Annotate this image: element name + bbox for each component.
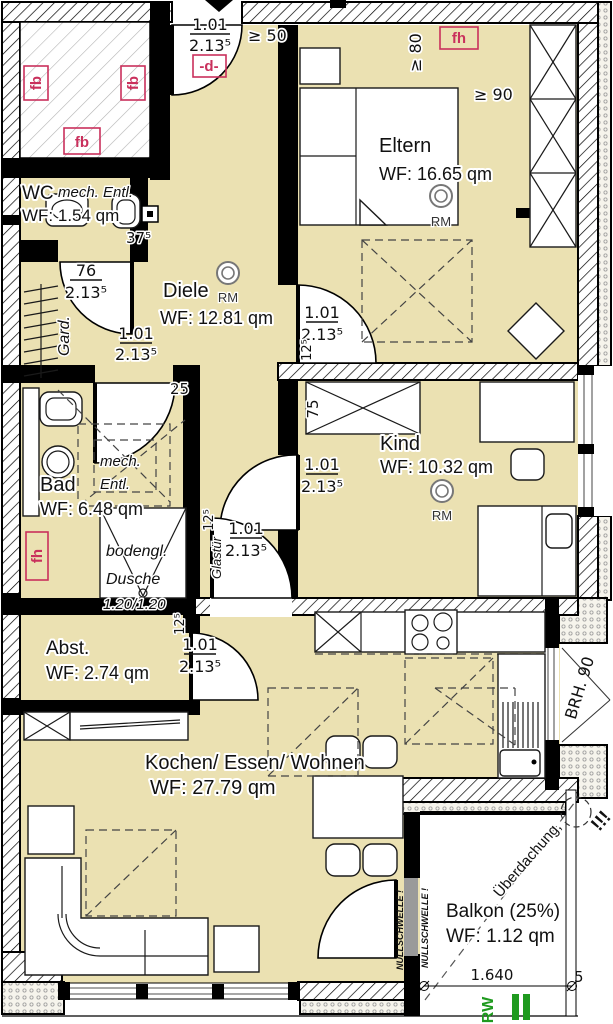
fh-marker-eltern: fh [452, 30, 466, 47]
room-area-abst: WF: 2.74 qm [46, 663, 149, 683]
fb-marker-3: fb [75, 134, 89, 151]
dim-wc-wall: 37⁵ [126, 229, 151, 247]
rw-label: RW [480, 996, 497, 1023]
dim-wardrobe: 75 [304, 399, 322, 418]
room-label-diele: Diele [163, 280, 209, 302]
rm-label-diele: RM [218, 290, 238, 305]
room-area-balkon: WF: 1.12 qm [446, 926, 555, 947]
door-glas-label: Glastür [209, 536, 224, 579]
fh-marker-bad: fh [29, 549, 46, 563]
door-bad-width: 1.01 [118, 324, 154, 343]
ueberdachung-label: Überdachung, [490, 818, 565, 901]
room-area-bad: WF: 6.48 qm [40, 499, 143, 519]
door-entry-width: 1.01 [192, 15, 228, 34]
shower-bodengl: bodengl. [106, 543, 167, 560]
door-wc-width: 76 [76, 261, 96, 280]
wc-vent-label: mech. Entl. [58, 184, 133, 201]
door-abst-height: 2.13⁵ [179, 657, 221, 676]
door-glas-width: 1.01 [228, 519, 264, 538]
door-kind-width: 1.01 [304, 455, 340, 474]
door-entry-min: ≥ 50 [248, 26, 287, 45]
floorplan-page: fb fb fb [0, 0, 613, 1024]
room-area-kind: WF: 10.32 qm [380, 457, 493, 477]
door-abst-stub: 12⁵ [173, 613, 188, 635]
fb-marker-1: fb [28, 76, 45, 90]
room-label-balkon: Balkon (25%) [446, 901, 560, 922]
floorplan-drawing: fb fb fb [0, 0, 613, 1024]
room-label-wohnen: Kochen/ Essen/ Wohnen [145, 752, 365, 774]
room-area-wohnen: WF: 27.79 qm [150, 777, 276, 799]
rm-label-kind: RM [432, 508, 452, 523]
room-label-eltern: Eltern [379, 135, 431, 157]
room-label-bad: Bad [40, 474, 76, 496]
rm-label-eltern: RM [431, 214, 451, 229]
door-bad-height: 2.13⁵ [115, 345, 157, 364]
room-area-diele: WF: 12.81 qm [160, 308, 273, 328]
dim-min90: ≥ 90 [474, 85, 513, 104]
shower-size: 1.20/1.20 [103, 596, 166, 613]
bad-vent-mech: mech. [100, 453, 141, 470]
nullschwelle-right: NULLSCHWELLE ! [420, 888, 430, 968]
dim-balkon-width: 1.640 [471, 966, 514, 984]
shower-dusche: Dusche [106, 571, 160, 588]
dim-balkon-extra: 5 [574, 968, 584, 986]
door-wc-height: 2.13⁵ [65, 283, 107, 302]
gard-label: Gard. [56, 316, 73, 356]
room-area-eltern: WF: 16.65 qm [379, 164, 492, 184]
fb-marker-2: fb [125, 76, 142, 90]
eltern-wardrobe [530, 25, 576, 247]
door-entry-height: 2.13⁵ [189, 36, 231, 55]
room-label-kind: Kind [380, 433, 420, 455]
door-abst-width: 1.01 [182, 635, 218, 654]
door-entry-type: -d- [199, 58, 218, 75]
door-kind-height: 2.13⁵ [301, 477, 343, 496]
door-eltern-width: 1.01 [304, 303, 340, 322]
dim-brh: BRH. 90 [561, 654, 598, 721]
dim-niche: 25 [170, 380, 189, 398]
door-glas-height: 2.13⁵ [225, 541, 267, 560]
nullschwelle-left: NULLSCHWELLE ! [395, 890, 405, 970]
room-area-wc: WF: 1.54 qm [22, 206, 119, 225]
door-glas-stub: 12⁵ [202, 509, 217, 531]
door-eltern-stub: 12⁵ [300, 339, 315, 361]
bad-vent-entl: Entl. [100, 476, 130, 493]
dim-min80: ≥ 80 [406, 33, 425, 72]
kind-wardrobe [306, 382, 420, 434]
room-label-wc: WC [22, 183, 54, 204]
room-label-abst: Abst. [46, 638, 89, 659]
stairwell: fb fb fb [20, 22, 150, 158]
